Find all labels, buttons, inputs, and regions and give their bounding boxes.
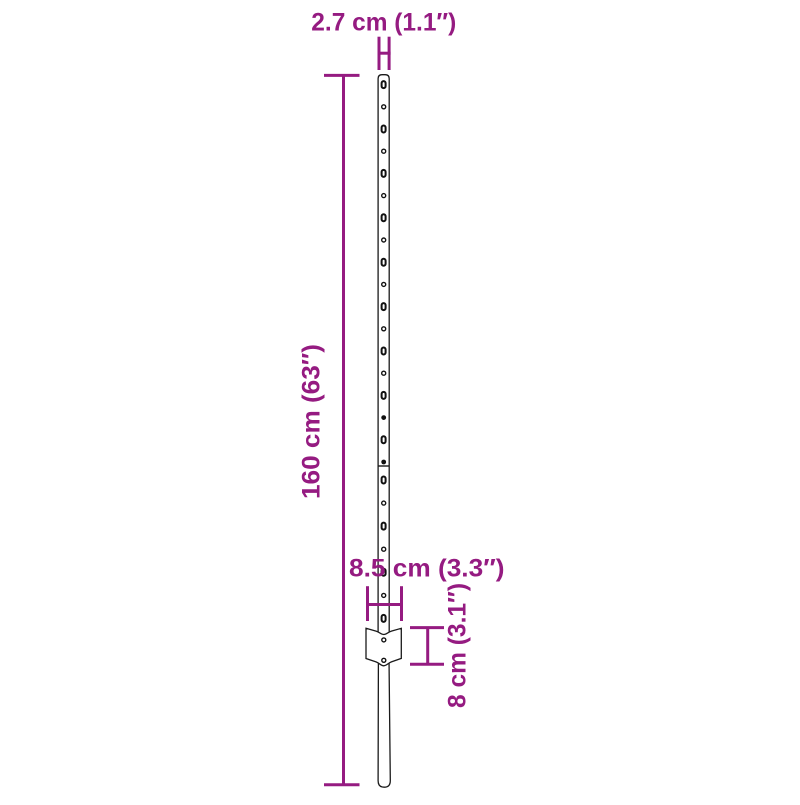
- svg-text:8.5 cm (3.3″): 8.5 cm (3.3″): [349, 556, 505, 583]
- svg-text:2.7 cm (1.1″): 2.7 cm (1.1″): [311, 10, 456, 37]
- svg-text:8 cm (3.1″): 8 cm (3.1″): [445, 583, 472, 708]
- svg-text:160 cm (63″): 160 cm (63″): [299, 344, 326, 499]
